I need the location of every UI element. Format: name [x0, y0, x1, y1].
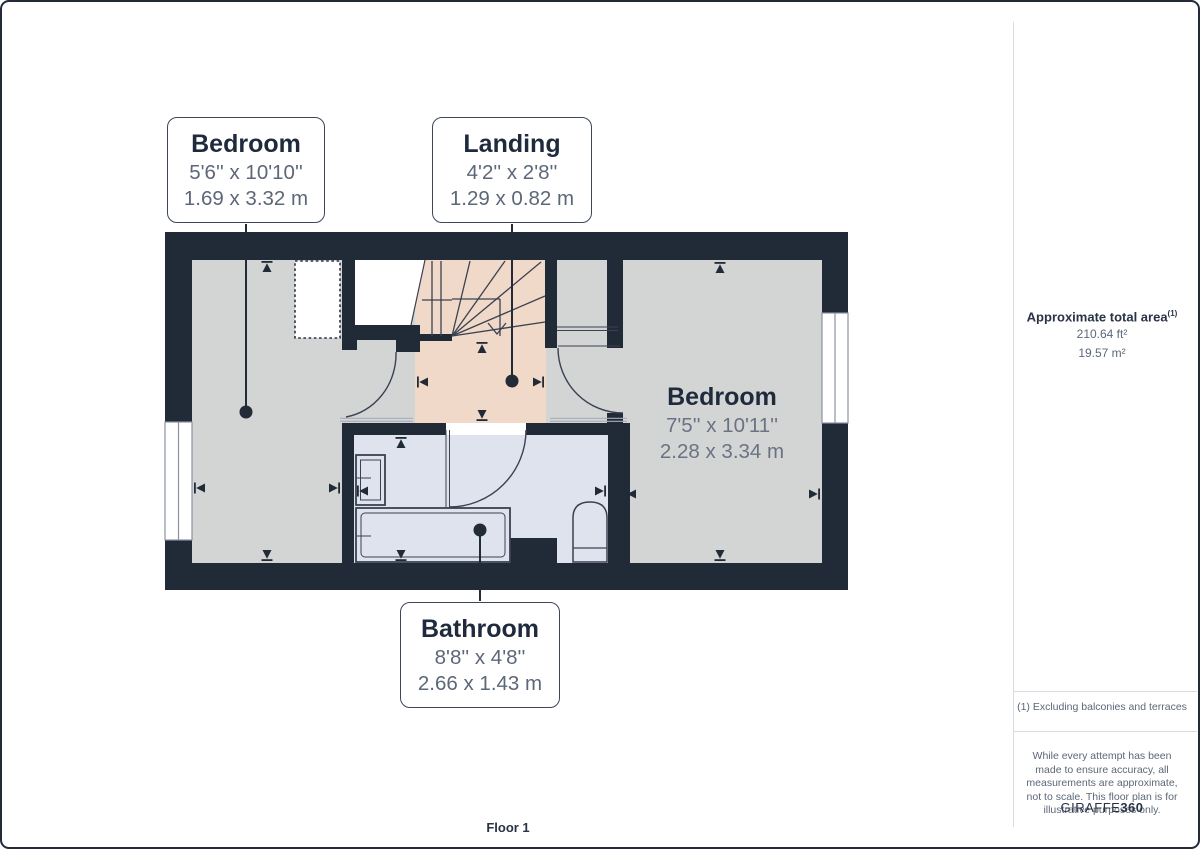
dimension-arrow-bar	[357, 486, 359, 497]
leader-dot-landing	[506, 375, 519, 388]
callout-dim-imperial: 8'8'' x 4'8''	[435, 645, 526, 671]
callout-dim-metric: 2.66 x 1.43 m	[418, 671, 542, 697]
callout-dim-imperial: 4'2'' x 2'8''	[467, 160, 558, 186]
stair-nosing	[420, 334, 452, 341]
dimension-arrow-bar	[194, 483, 196, 494]
dimension-arrow-bar	[477, 419, 488, 421]
leader-dot-bedroom-left	[240, 406, 253, 419]
toilet	[573, 502, 607, 562]
dimension-arrow-bar	[338, 483, 340, 494]
callout-bedroom-left: Bedroom 5'6'' x 10'10'' 1.69 x 3.32 m	[167, 117, 325, 223]
bathtub	[356, 508, 510, 562]
wall-bedroom-stairs	[342, 232, 355, 325]
wall-stub-left	[342, 325, 357, 350]
dimension-arrow-bar	[625, 489, 627, 500]
footnote-marker: (1)	[1168, 309, 1178, 318]
leader-dot-bathroom	[474, 524, 487, 537]
total-area-block: Approximate total area(1) 210.64 ft² 19.…	[1014, 306, 1190, 363]
dimension-arrow-bar	[604, 486, 606, 497]
room-label-bedroom-right: Bedroom 7'5'' x 10'11'' 2.28 x 3.34 m	[597, 382, 847, 465]
total-area-metric: 19.57 m²	[1014, 344, 1190, 363]
wall-bedroom-bathroom	[342, 423, 354, 563]
wall-stairs-right	[545, 232, 557, 348]
wall-stub-right	[396, 336, 420, 352]
callout-title: Bathroom	[421, 614, 539, 645]
wall-bottom	[165, 563, 848, 590]
area-footnote: (1) Excluding balconies and terraces	[1014, 701, 1190, 713]
callout-title: Bedroom	[191, 129, 301, 160]
landing-floor	[415, 260, 546, 423]
callout-dim-metric: 1.29 x 0.82 m	[450, 186, 574, 212]
callout-dim-metric: 1.69 x 3.32 m	[184, 186, 308, 212]
dimension-arrow-bar	[715, 559, 726, 561]
callout-landing: Landing 4'2'' x 2'8'' 1.29 x 0.82 m	[432, 117, 592, 223]
dimension-arrow-bar	[262, 559, 273, 561]
sidebar-hdivider-1	[1013, 691, 1197, 692]
wall-top	[165, 232, 848, 260]
dimension-arrow-bar	[262, 261, 273, 263]
total-area-imperial: 210.64 ft²	[1014, 325, 1190, 344]
dimension-arrow-bar	[417, 377, 419, 388]
room-dim-imperial: 7'5'' x 10'11''	[597, 413, 847, 439]
wall-boxing	[510, 538, 557, 563]
dimension-arrow-bar	[477, 342, 488, 344]
sidebar-hdivider-2	[1013, 731, 1197, 732]
callout-dim-imperial: 5'6'' x 10'10''	[189, 160, 303, 186]
skylight	[295, 261, 340, 338]
room-title: Bedroom	[597, 382, 847, 413]
dimension-arrow-bar	[818, 489, 820, 500]
wall-bathroom-top-left	[342, 423, 446, 435]
room-dim-metric: 2.28 x 3.34 m	[597, 439, 847, 465]
dimension-arrow-bar	[396, 559, 407, 561]
callout-title: Landing	[463, 129, 560, 160]
dimension-arrow-bar	[396, 437, 407, 439]
floor-label: Floor 1	[428, 820, 588, 835]
dimension-arrow-bar	[715, 262, 726, 264]
dimension-arrow-bar	[542, 377, 544, 388]
total-area-title: Approximate total area(1)	[1014, 306, 1190, 325]
giraffe360-logo: GIRAFFE360	[1014, 800, 1190, 815]
callout-bathroom: Bathroom 8'8'' x 4'8'' 2.66 x 1.43 m	[400, 602, 560, 708]
